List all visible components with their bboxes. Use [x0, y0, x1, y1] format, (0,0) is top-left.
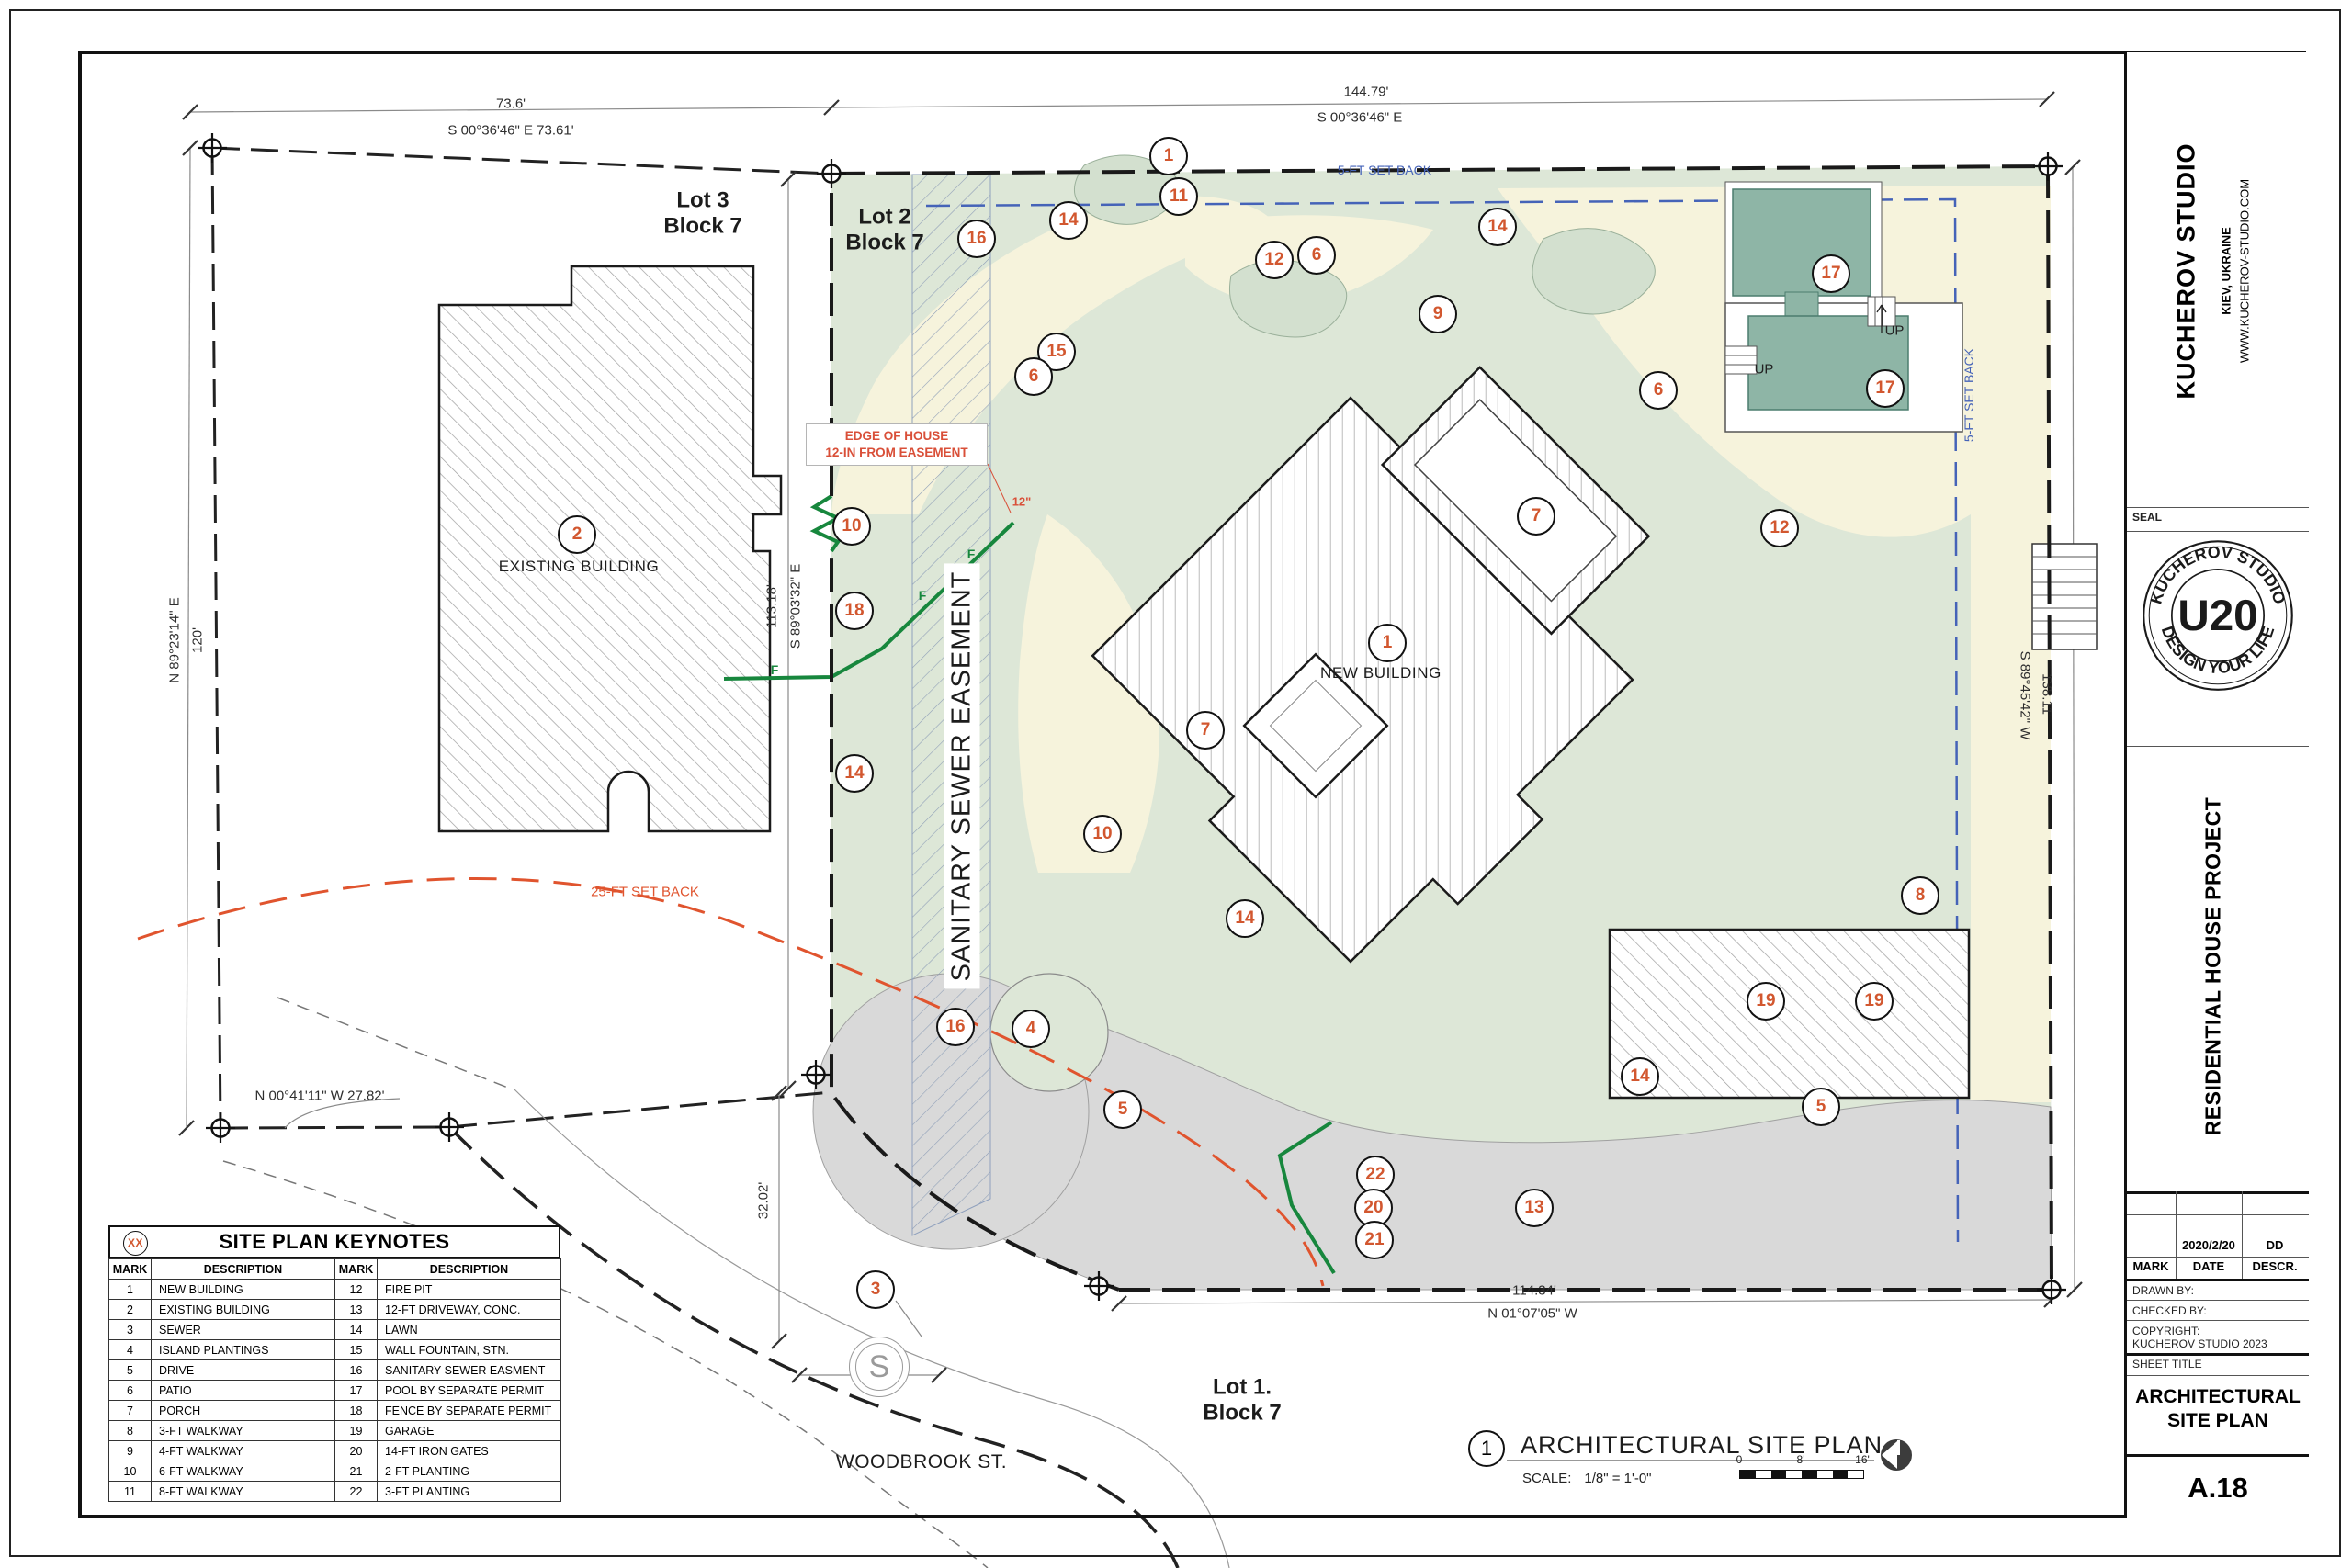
- setback-25ft-label: 25-FT SET BACK: [591, 885, 699, 900]
- keynote-bubble: 19: [1747, 982, 1785, 1021]
- north-arrow-icon: [1878, 1437, 1915, 1473]
- keynote-bubble: 18: [835, 592, 874, 630]
- dim-top-left-bearing: S 00°36'46" E 73.61': [447, 123, 573, 139]
- sheet-title-line2: SITE PLAN: [2127, 1410, 2309, 1432]
- fence-marker: F: [771, 662, 779, 677]
- keynote-bubble: 17: [1812, 254, 1850, 293]
- keynotes-header: MARK: [109, 1259, 152, 1280]
- plan-title: ARCHITECTURAL SITE PLAN: [1521, 1431, 1883, 1460]
- scalebar-tick-0: 0: [1736, 1453, 1743, 1466]
- dim-left-bearing: N 89°23'14" E: [167, 597, 183, 682]
- keynotes-header: MARK: [335, 1259, 378, 1280]
- easement-label: SANITARY SEWER EASEMENT: [944, 564, 980, 989]
- edge-of-house-note: EDGE OF HOUSE 12-IN FROM EASEMENT: [806, 423, 988, 466]
- keynote-row: 5DRIVE16SANITARY SEWER EASMENT: [109, 1360, 561, 1381]
- sheet-number: A.18: [2127, 1472, 2309, 1505]
- keynote-bubble: 6: [1014, 357, 1053, 396]
- plan-scale: SCALE:1/8" = 1'-0": [1522, 1471, 1665, 1486]
- keynote-bubble: 10: [1083, 815, 1122, 853]
- keynote-bubble: 3: [856, 1270, 895, 1309]
- keynote-row: 4ISLAND PLANTINGS15WALL FOUNTAIN, STN.: [109, 1340, 561, 1360]
- drawn-by-label: DRAWN BY:: [2132, 1284, 2194, 1297]
- keynote-row: 118-FT WALKWAY223-FT PLANTING: [109, 1482, 561, 1502]
- keynote-sample-bubble: XX: [123, 1231, 148, 1256]
- plan-title-rule: [1507, 1460, 1874, 1461]
- keynote-bubble: 12: [1760, 509, 1799, 547]
- dim-bottom-length: 114.34': [1512, 1283, 1556, 1299]
- keynote-bubble: 13: [1515, 1189, 1554, 1227]
- revision-header-date: DATE: [2193, 1259, 2224, 1273]
- dim-mid-length: 113.18': [764, 584, 780, 628]
- keynote-bubble: 19: [1855, 982, 1894, 1021]
- keynote-bubble: 1: [1149, 137, 1188, 175]
- dim-32: 32.02': [756, 1182, 772, 1219]
- studio-name: KUCHEROV STUDIO: [2173, 142, 2201, 399]
- street-label: WOODBROOK ST.: [836, 1451, 1007, 1473]
- sewer-manhole-symbol: S: [849, 1337, 910, 1397]
- keynote-bubble: 16: [957, 220, 996, 258]
- existing-building-label: EXISTING BUILDING: [499, 558, 660, 576]
- project-name: RESIDENTIAL HOUSE PROJECT: [2201, 797, 2226, 1136]
- keynote-bubble: 12: [1255, 241, 1294, 279]
- dim-top-right-bearing: S 00°36'46" E: [1317, 110, 1403, 126]
- keynote-bubble: 14: [1049, 201, 1088, 240]
- new-building-label: NEW BUILDING: [1320, 664, 1442, 682]
- keynote-bubble: 14: [835, 754, 874, 793]
- keynotes-table: MARK DESCRIPTION MARK DESCRIPTION 1NEW B…: [108, 1258, 561, 1502]
- keynote-bubble: 21: [1355, 1221, 1394, 1259]
- keynotes-header: DESCRIPTION: [152, 1259, 335, 1280]
- fence-marker: F: [967, 547, 976, 561]
- sheet-title-label: SHEET TITLE: [2132, 1358, 2202, 1371]
- lot1-label: Lot 1.Block 7: [1203, 1374, 1281, 1425]
- dim-right-bearing: S 89°45'42" W: [2018, 651, 2033, 740]
- keynotes-title-bar: XX SITE PLAN KEYNOTES: [108, 1225, 560, 1258]
- dim-bottom-bearing: N 01°07'05" W: [1487, 1306, 1577, 1322]
- checked-by-label: CHECKED BY:: [2132, 1304, 2207, 1317]
- keynote-bubble: 4: [1012, 1010, 1050, 1048]
- up-label: UP: [1755, 362, 1774, 378]
- revision-descr: DD: [2267, 1238, 2284, 1252]
- keynotes-header: DESCRIPTION: [378, 1259, 561, 1280]
- keynote-bubble: 2: [558, 515, 596, 554]
- keynote-row: 2EXISTING BUILDING1312-FT DRIVEWAY, CONC…: [109, 1300, 561, 1320]
- dim-left-length: 120': [190, 627, 206, 653]
- copyright-value: KUCHEROV STUDIO 2023: [2132, 1337, 2267, 1350]
- revision-header-mark: MARK: [2133, 1259, 2169, 1273]
- dim-right-length: 138.11': [2040, 673, 2055, 717]
- scale-label: SCALE:: [1522, 1471, 1571, 1486]
- revision-date: 2020/2/20: [2182, 1238, 2235, 1252]
- keynote-bubble: 7: [1186, 711, 1225, 750]
- studio-city: KIEV, UKRAINE: [2220, 227, 2233, 315]
- scale-value: 1/8" = 1'-0": [1584, 1471, 1651, 1486]
- keynote-bubble: 9: [1419, 295, 1457, 333]
- up-label: UP: [1885, 323, 1905, 339]
- keynote-bubble: 8: [1901, 876, 1939, 915]
- drawing-sheet: 73.6' S 00°36'46" E 73.61' 144.79' S 00°…: [0, 0, 2352, 1568]
- keynote-bubble: 17: [1866, 369, 1905, 408]
- keynote-bubble: 7: [1517, 497, 1555, 536]
- copyright-label: COPYRIGHT:: [2132, 1325, 2199, 1337]
- scalebar-tick-8: 8': [1797, 1453, 1805, 1466]
- keynote-bubble: 14: [1621, 1057, 1659, 1096]
- keynote-row: 94-FT WALKWAY2014-FT IRON GATES: [109, 1441, 561, 1461]
- keynote-bubble: 6: [1297, 236, 1336, 275]
- svg-text:U20: U20: [2177, 592, 2257, 640]
- keynote-bubble: 1: [1368, 624, 1407, 662]
- keynote-row: 1NEW BUILDING12FIRE PIT: [109, 1280, 561, 1300]
- keynote-bubble: 16: [936, 1008, 975, 1046]
- scale-bar: [1739, 1470, 1864, 1479]
- keynote-bubble: 10: [832, 507, 871, 546]
- scalebar-tick-16: 16': [1855, 1453, 1870, 1466]
- dim-southwest-bearing: N 00°41'11" W 27.82': [254, 1089, 384, 1104]
- title-block: KUCHEROV STUDIO KIEV, UKRAINE WWW.KUCHER…: [2124, 52, 2306, 1518]
- keynote-bubble: 14: [1226, 899, 1264, 938]
- keynote-bubble: 14: [1478, 208, 1517, 246]
- keynote-bubble: 11: [1159, 177, 1198, 216]
- fence-marker: F: [919, 588, 927, 603]
- keynote-bubble: 6: [1639, 371, 1678, 410]
- keynotes-title: SITE PLAN KEYNOTES: [219, 1230, 449, 1254]
- keynote-row: 83-FT WALKWAY19GARAGE: [109, 1421, 561, 1441]
- dim-top-left-length: 73.6': [496, 96, 526, 112]
- keynotes-body: 1NEW BUILDING12FIRE PIT2EXISTING BUILDIN…: [109, 1280, 561, 1502]
- keynote-row: 6PATIO17POOL BY SEPARATE PERMIT: [109, 1381, 561, 1401]
- setback-5ft-top-label: 5-FT SET BACK: [1338, 163, 1431, 177]
- studio-website: WWW.KUCHEROV-STUDIO.COM: [2238, 179, 2252, 363]
- seal-label: SEAL: [2132, 511, 2162, 524]
- keynote-row: 3SEWER14LAWN: [109, 1320, 561, 1340]
- lot3-label: Lot 3Block 7: [663, 187, 741, 238]
- keynote-row: 7PORCH18FENCE BY SEPARATE PERMIT: [109, 1401, 561, 1421]
- setback-5ft-right-label: 5-FT SET BACK: [1962, 348, 1976, 442]
- twelve-inch-label: 12": [1012, 495, 1032, 509]
- keynote-bubble: 5: [1802, 1088, 1840, 1126]
- dim-mid-bearing: S 89°03'32" E: [788, 564, 804, 649]
- lot2-label: Lot 2Block 7: [845, 204, 923, 254]
- keynote-row: 106-FT WALKWAY212-FT PLANTING: [109, 1461, 561, 1482]
- keynotes-panel: XX SITE PLAN KEYNOTES MARK DESCRIPTION M…: [108, 1225, 560, 1502]
- dim-top-right-length: 144.79': [1344, 85, 1389, 100]
- sheet-title-line1: ARCHITECTURAL: [2127, 1386, 2309, 1408]
- keynote-bubble: 5: [1103, 1090, 1142, 1129]
- studio-seal: KUCHEROV STUDIO DESIGN YOUR LIFE U20: [2140, 537, 2296, 694]
- detail-number-bubble: 1: [1468, 1430, 1505, 1467]
- revision-header-descr: DESCR.: [2252, 1259, 2297, 1273]
